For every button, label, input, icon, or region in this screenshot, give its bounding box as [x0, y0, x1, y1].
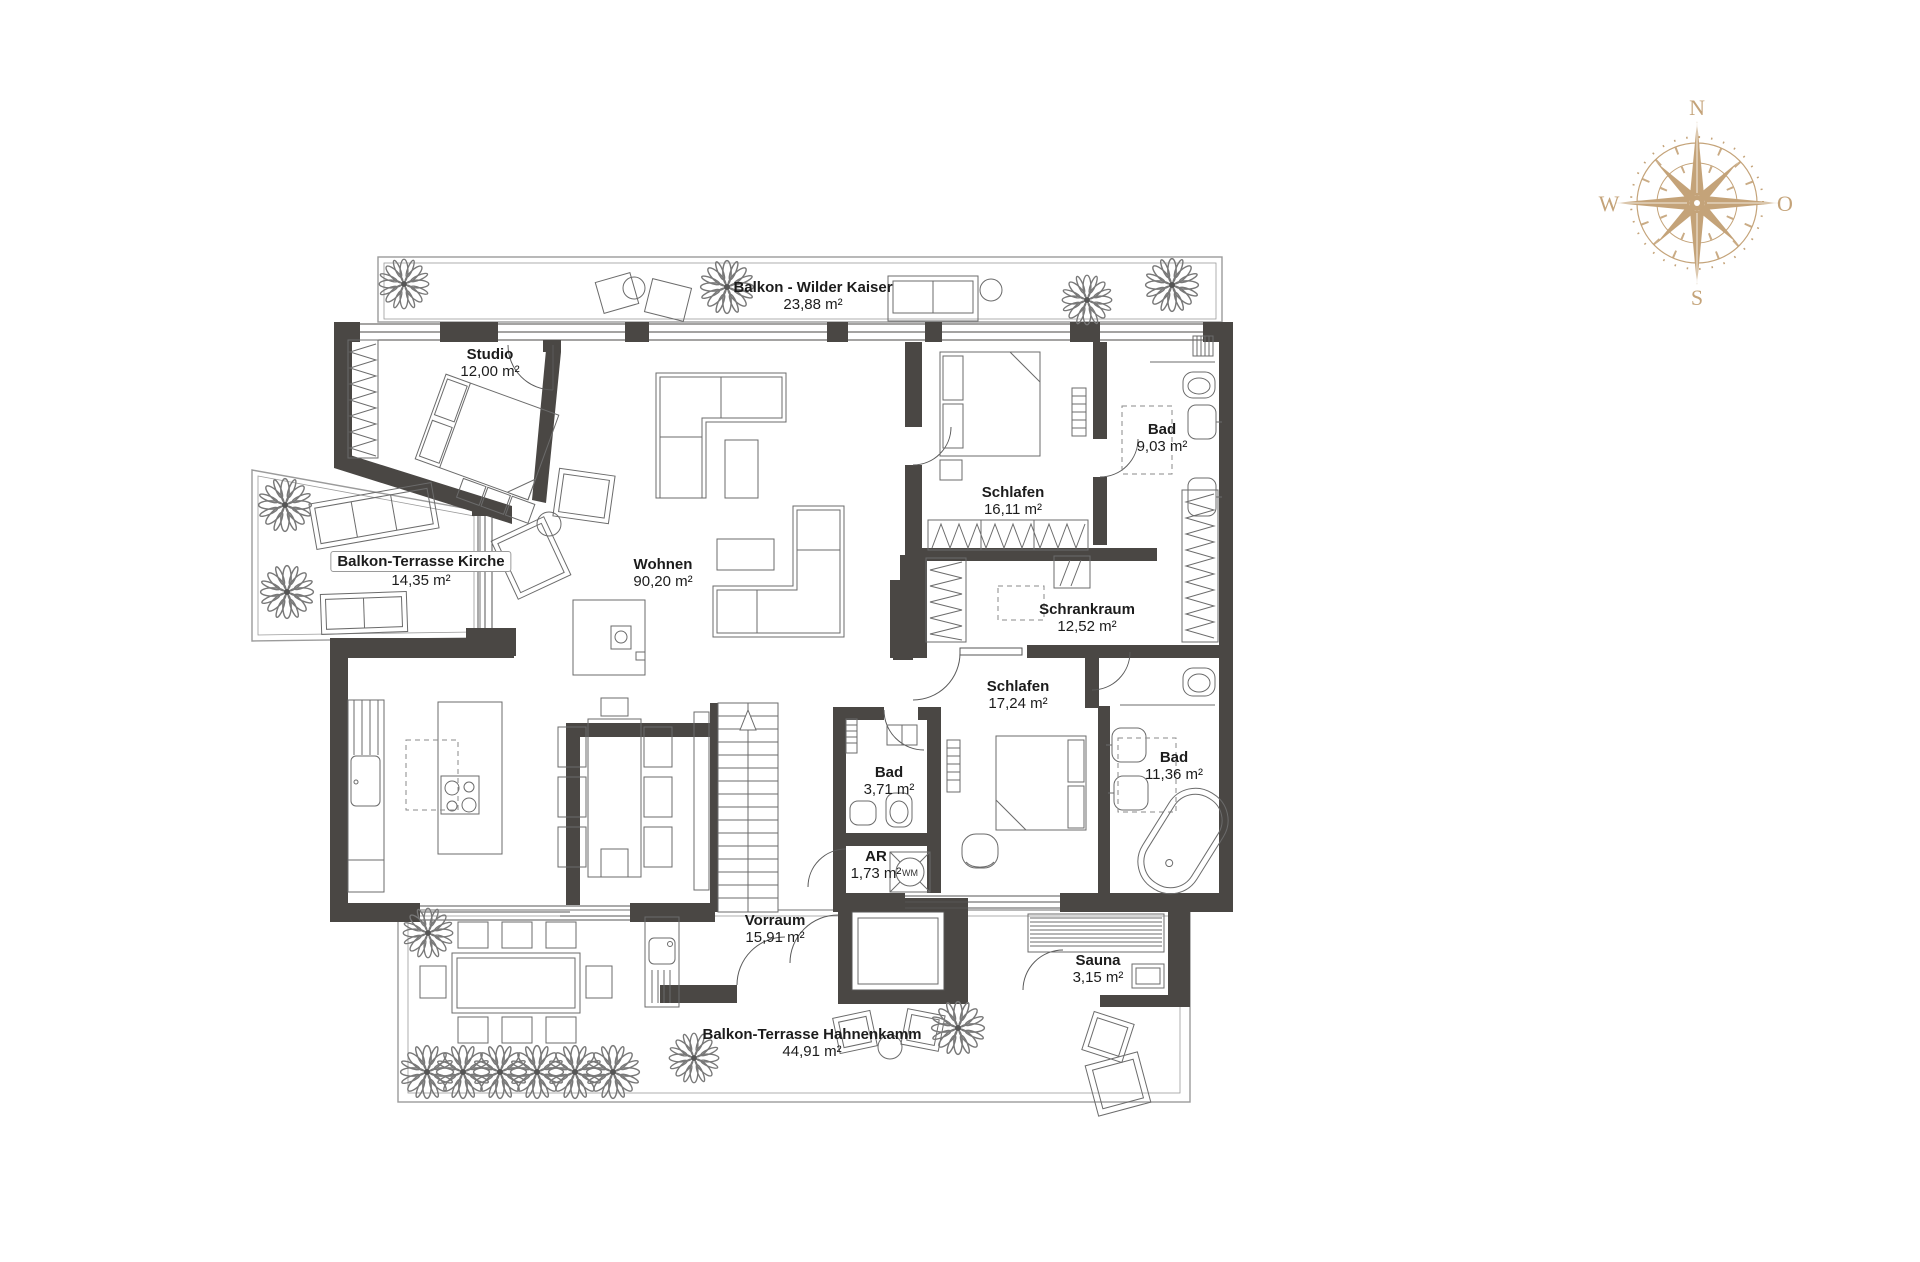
room-area: 11,36 m² [1145, 766, 1203, 783]
compass-east-label: O [1777, 191, 1793, 216]
room-area: 90,20 m² [633, 573, 692, 590]
room-area: 15,91 m² [745, 929, 806, 946]
room-name: Balkon-Terrasse Hahnenkamm [703, 1026, 922, 1043]
room-label-schrankraum: Schrankraum 12,52 m² [1039, 601, 1135, 635]
room-label-bad-1: Bad 9,03 m² [1137, 421, 1188, 455]
room-name: Sauna [1073, 952, 1124, 969]
plants [259, 259, 1199, 1099]
compass-west-label: W [1599, 191, 1620, 216]
room-area: 12,52 m² [1039, 618, 1135, 635]
elevator [852, 912, 944, 990]
room-name: Vorraum [745, 912, 806, 929]
room-name: Bad [864, 764, 915, 781]
room-name: Schlafen [982, 484, 1045, 501]
floorplan-drawing: WM [0, 0, 1920, 1262]
room-area: 1,73 m² [851, 865, 902, 882]
room-area: 3,71 m² [864, 781, 915, 798]
room-label-vorraum: Vorraum 15,91 m² [745, 912, 806, 946]
room-name: AR [851, 848, 902, 865]
floorplan-page: WM [0, 0, 1920, 1262]
room-label-schlafen-1: Schlafen 16,11 m² [982, 484, 1045, 518]
room-name: Balkon-Terrasse Kirche [330, 551, 511, 572]
room-name: Bad [1145, 749, 1203, 766]
room-name: Balkon - Wilder Kaiser [733, 279, 892, 296]
room-label-balkon-terrasse-kirche: Balkon-Terrasse Kirche 14,35 m² [330, 551, 511, 589]
doors [508, 345, 1138, 990]
room-label-studio: Studio 12,00 m² [460, 346, 519, 380]
compass-north-label: N [1689, 95, 1705, 120]
compass-south-label: S [1691, 285, 1703, 310]
room-area: 16,11 m² [982, 501, 1045, 518]
schlafen2-furniture [947, 736, 1086, 868]
room-label-bad-3: Bad 11,36 m² [1145, 749, 1203, 783]
room-label-ar: AR 1,73 m² [851, 848, 902, 882]
compass-rose: N O S W [1599, 95, 1793, 310]
room-label-balkon-wilder-kaiser: Balkon - Wilder Kaiser 23,88 m² [733, 279, 892, 313]
room-area: 3,15 m² [1073, 969, 1124, 986]
room-name: Bad [1137, 421, 1188, 438]
room-name: Schlafen [987, 678, 1050, 695]
room-area: 14,35 m² [330, 572, 511, 589]
room-area: 23,88 m² [733, 296, 892, 313]
room-label-sauna: Sauna 3,15 m² [1073, 952, 1124, 986]
room-name: Wohnen [633, 556, 692, 573]
room-area: 17,24 m² [987, 695, 1050, 712]
room-label-schlafen-2: Schlafen 17,24 m² [987, 678, 1050, 712]
room-name: Studio [460, 346, 519, 363]
walls [330, 322, 1233, 1007]
room-label-bad-2: Bad 3,71 m² [864, 764, 915, 798]
room-label-wohnen: Wohnen 90,20 m² [633, 556, 692, 590]
room-label-balkon-terrasse-hahnenkamm: Balkon-Terrasse Hahnenkamm 44,91 m² [703, 1026, 922, 1060]
room-name: Schrankraum [1039, 601, 1135, 618]
room-area: 12,00 m² [460, 363, 519, 380]
room-area: 44,91 m² [703, 1043, 922, 1060]
room-area: 9,03 m² [1137, 438, 1188, 455]
washing-machine-label: WM [902, 868, 918, 878]
schlafen1-furniture [928, 352, 1088, 550]
